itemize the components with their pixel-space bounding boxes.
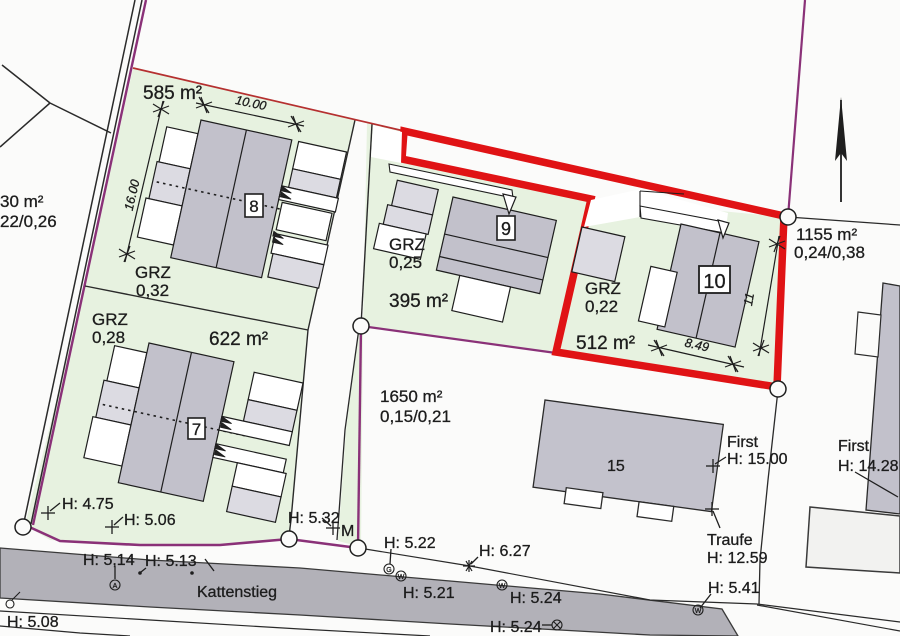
svg-text:0,32: 0,32: [136, 281, 169, 300]
svg-text:15: 15: [607, 458, 625, 475]
svg-text:30 m²: 30 m²: [0, 192, 44, 211]
svg-text:GRZ: GRZ: [135, 263, 171, 282]
svg-text:GRZ: GRZ: [585, 279, 621, 298]
svg-text:G: G: [386, 567, 391, 574]
svg-text:H: 5.21: H: 5.21: [403, 585, 455, 602]
svg-text:H: 5.13: H: 5.13: [145, 553, 197, 570]
svg-text:1155 m²: 1155 m²: [796, 225, 857, 244]
svg-text:H: 5.08: H: 5.08: [7, 614, 59, 631]
svg-text:First: First: [727, 434, 759, 451]
svg-text:395 m²: 395 m²: [389, 291, 448, 312]
svg-text:H: 4.75: H: 4.75: [62, 496, 114, 513]
svg-text:H: 5.24: H: 5.24: [510, 590, 562, 607]
svg-text:9: 9: [501, 219, 511, 239]
svg-text:0,22: 0,22: [585, 297, 618, 316]
svg-text:H: 6.27: H: 6.27: [479, 543, 531, 560]
svg-text:H: 14.28: H: 14.28: [838, 458, 899, 475]
svg-text:0,28: 0,28: [92, 328, 125, 347]
svg-text:7: 7: [192, 420, 201, 439]
svg-text:1650 m²: 1650 m²: [380, 387, 443, 406]
svg-text:H: 5.41: H: 5.41: [708, 580, 760, 597]
svg-text:W: W: [499, 583, 506, 590]
svg-text:11: 11: [741, 292, 757, 307]
svg-text:W: W: [398, 574, 405, 581]
svg-text:0,25: 0,25: [389, 253, 422, 272]
svg-text:W: W: [695, 608, 702, 615]
svg-text:H: 15.00: H: 15.00: [727, 451, 788, 468]
svg-text:H: 5.24: H: 5.24: [490, 619, 542, 636]
svg-text:A: A: [113, 583, 118, 590]
svg-text:8: 8: [249, 197, 258, 216]
svg-text:512 m²: 512 m²: [576, 333, 635, 354]
svg-text:622 m²: 622 m²: [209, 329, 268, 350]
svg-text:Kattenstieg: Kattenstieg: [197, 584, 277, 601]
svg-text:585 m²: 585 m²: [143, 83, 202, 104]
svg-text:Traufe: Traufe: [707, 532, 753, 549]
svg-text:First: First: [838, 438, 870, 455]
svg-text:H: 5.32: H: 5.32: [288, 510, 340, 527]
svg-text:H: 12.59: H: 12.59: [707, 550, 768, 567]
svg-text:10: 10: [703, 271, 725, 293]
svg-text:M: M: [341, 523, 354, 540]
svg-text:H: 5,14: H: 5,14: [83, 552, 135, 569]
svg-text:H: 5.06: H: 5.06: [124, 512, 176, 529]
svg-text:0,24/0,38: 0,24/0,38: [794, 243, 865, 262]
svg-text:22/0,26: 22/0,26: [0, 212, 57, 231]
svg-text:GRZ: GRZ: [92, 310, 128, 329]
svg-text:0,15/0,21: 0,15/0,21: [380, 407, 451, 426]
svg-text:GRZ: GRZ: [389, 235, 425, 254]
svg-text:H: 5.22: H: 5.22: [384, 535, 436, 552]
